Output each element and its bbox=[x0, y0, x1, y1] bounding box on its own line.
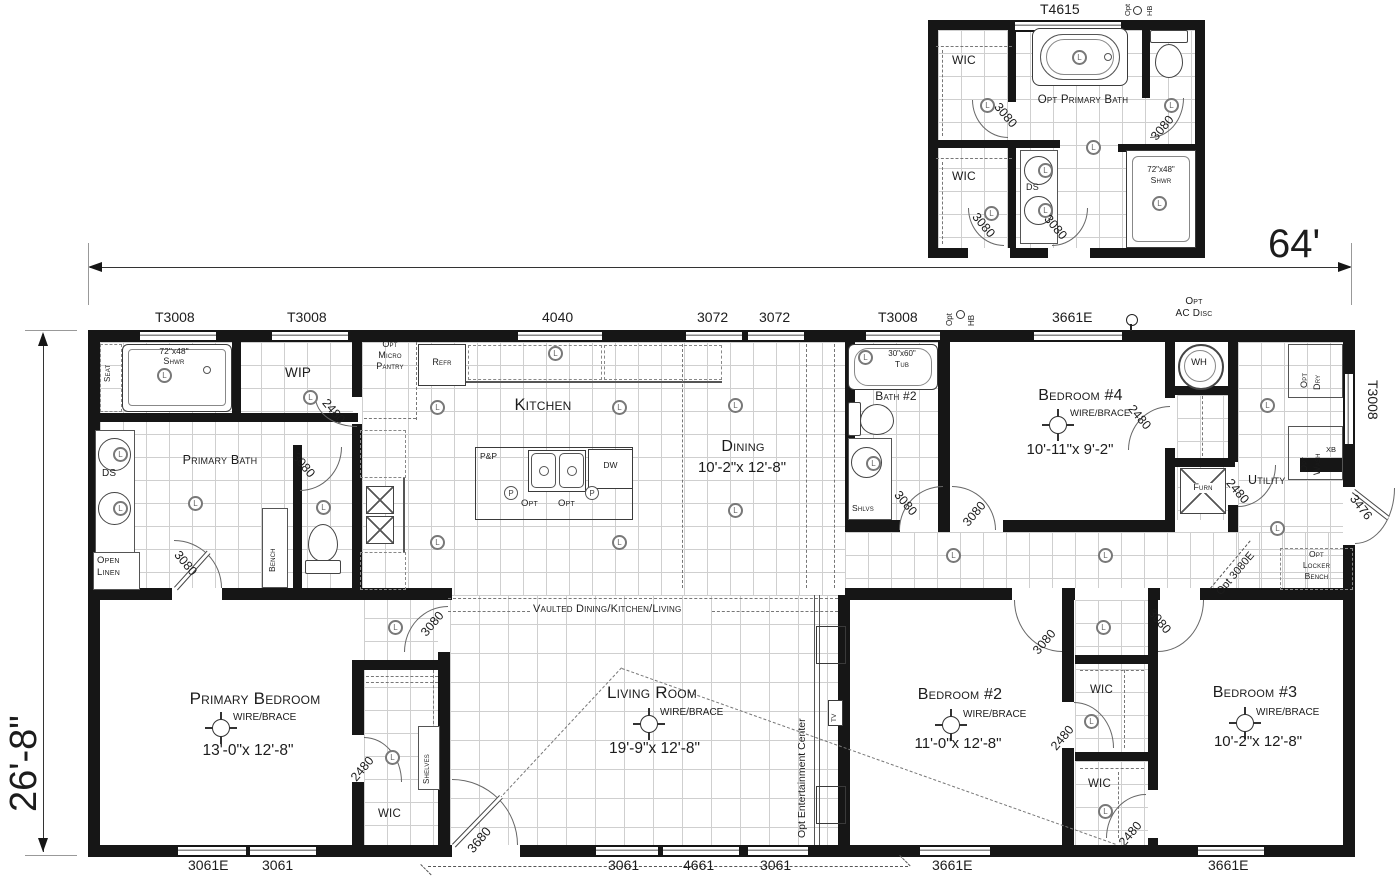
wall bbox=[1008, 140, 1060, 148]
closet-rod bbox=[1080, 670, 1144, 671]
wall bbox=[1195, 20, 1205, 258]
window bbox=[272, 330, 348, 342]
wic-label: WIC bbox=[378, 808, 401, 821]
wire-brace-label: WIRE/BRACE bbox=[660, 707, 723, 718]
arrow-left-icon bbox=[88, 262, 102, 272]
window-label: 4040 bbox=[542, 310, 573, 325]
wall bbox=[1008, 140, 1016, 248]
wall bbox=[1175, 458, 1235, 467]
bench-label: Bench bbox=[268, 548, 277, 572]
closet-rod bbox=[1080, 768, 1144, 769]
pots-pans-label: P&P bbox=[480, 452, 497, 461]
arrow-down-icon bbox=[38, 838, 48, 852]
dishwasher-label: DW bbox=[588, 461, 633, 470]
closet-rod bbox=[936, 158, 1012, 159]
wall bbox=[928, 20, 938, 258]
ceiling-light-icon: L bbox=[1164, 98, 1179, 113]
ceiling-light-icon: L bbox=[157, 368, 172, 383]
window-label: 3061 bbox=[608, 858, 639, 873]
room-label: Kitchen bbox=[498, 396, 588, 414]
ceiling-light-icon: L bbox=[1084, 714, 1099, 729]
window-label: 3661E bbox=[932, 858, 972, 873]
ceiling-light-icon: L bbox=[728, 398, 743, 413]
drain-icon bbox=[539, 466, 549, 476]
window-label: T3008 bbox=[287, 310, 327, 325]
window bbox=[866, 330, 940, 342]
wall bbox=[358, 660, 446, 670]
cabinet-outline bbox=[604, 345, 722, 380]
meter-icon bbox=[1130, 324, 1132, 331]
toilet-tank bbox=[305, 560, 341, 574]
closet-rod bbox=[366, 682, 438, 683]
ceiling-light-icon: L bbox=[1038, 163, 1053, 178]
drain-icon bbox=[567, 466, 577, 476]
opt-hb-label: Opt bbox=[1124, 4, 1132, 16]
opt-hb-label: Opt bbox=[946, 313, 955, 326]
vault-line bbox=[448, 611, 530, 612]
locker-bench-label: Opt bbox=[1280, 550, 1353, 559]
shower-size: 72"x48" bbox=[134, 347, 214, 356]
window bbox=[178, 845, 246, 857]
closet-rod bbox=[942, 50, 943, 136]
ceiling-light-icon: L bbox=[388, 620, 403, 635]
ceiling-fan-icon bbox=[636, 711, 662, 737]
window-label: 3061E bbox=[188, 858, 228, 873]
window bbox=[686, 330, 742, 342]
ceiling-light-icon: L bbox=[316, 500, 331, 515]
wall bbox=[1148, 838, 1158, 845]
window-label: T3008 bbox=[155, 310, 195, 325]
window-label: T3008 bbox=[1365, 380, 1380, 420]
counter-edge bbox=[466, 381, 722, 383]
meter-icon bbox=[1126, 314, 1138, 326]
entertainment-center-label: Opt Entertainment Center bbox=[797, 718, 809, 838]
wall bbox=[1062, 748, 1074, 845]
ceiling-light-icon: L bbox=[946, 548, 961, 563]
counter-outline bbox=[360, 430, 406, 478]
counter-outline bbox=[360, 552, 406, 590]
wall bbox=[352, 782, 364, 845]
linen-label: Open bbox=[97, 556, 120, 566]
dimension-line-width bbox=[90, 267, 1350, 268]
wall bbox=[1228, 342, 1238, 462]
washer-label: Opt bbox=[1300, 457, 1310, 472]
xb-label: XB bbox=[1326, 446, 1336, 454]
opt-pendant-label: Opt bbox=[558, 499, 575, 509]
wic-label: WIC bbox=[952, 170, 976, 183]
ceiling-light-icon: L bbox=[1152, 196, 1167, 211]
double-sink-label: DS bbox=[1026, 183, 1039, 193]
closet-rod bbox=[942, 162, 943, 244]
room-label: Living Room bbox=[582, 684, 722, 703]
ceiling-fan-icon bbox=[1045, 412, 1071, 438]
dimension-tick bbox=[88, 243, 89, 305]
window-label: 3661E bbox=[1208, 858, 1248, 873]
ceiling-light-icon: L bbox=[1260, 398, 1275, 413]
wall bbox=[1075, 752, 1148, 761]
wall bbox=[1008, 30, 1016, 102]
wall bbox=[1062, 588, 1075, 600]
wire-brace-label: WIRE/BRACE bbox=[963, 709, 1026, 720]
counter-edge bbox=[403, 478, 405, 552]
ceiling-light-icon: L bbox=[1098, 804, 1113, 819]
dryer-label: Dry bbox=[1313, 375, 1323, 390]
width-dimension: 64' bbox=[1268, 222, 1320, 266]
wall bbox=[1165, 342, 1175, 398]
wall bbox=[1148, 588, 1160, 600]
room-size: 11'-0"x 12'-8" bbox=[888, 736, 1028, 753]
hose-bib-icon bbox=[1133, 6, 1142, 15]
shelves-label: Shelves bbox=[423, 754, 432, 784]
pendant-light-icon: P bbox=[504, 486, 518, 500]
shower-size: 72"x48" bbox=[1133, 166, 1189, 175]
room-label: Bedroom #4 bbox=[998, 387, 1163, 405]
window bbox=[518, 330, 602, 342]
dimension-tick bbox=[1351, 243, 1352, 305]
closet-rod bbox=[1124, 670, 1125, 748]
ceiling-light-icon: L bbox=[1098, 548, 1113, 563]
window bbox=[1034, 330, 1122, 342]
ceiling-light-icon: L bbox=[303, 390, 318, 405]
tub-size: 30"x60" bbox=[872, 350, 932, 359]
toilet-tank bbox=[1150, 30, 1188, 43]
window bbox=[250, 845, 316, 857]
entertainment-shelf bbox=[816, 626, 846, 664]
room-label: Utility bbox=[1248, 474, 1285, 488]
arrow-right-icon bbox=[1338, 262, 1352, 272]
toilet-bowl bbox=[860, 404, 894, 435]
window bbox=[748, 845, 808, 857]
wall bbox=[928, 140, 1016, 148]
room-label: Bath #2 bbox=[856, 390, 936, 403]
door-opening bbox=[1048, 248, 1090, 258]
ceiling-break-line bbox=[834, 344, 835, 588]
ceiling-light-icon: L bbox=[113, 447, 128, 462]
toilet-bowl bbox=[308, 524, 338, 562]
wall bbox=[88, 413, 240, 422]
double-sink-label: DS bbox=[102, 468, 116, 479]
hose-bib-icon bbox=[956, 310, 965, 319]
wic-label: WIC bbox=[1090, 684, 1113, 697]
room-label: Primary Bedroom bbox=[135, 690, 375, 709]
toilet-bowl bbox=[1155, 44, 1183, 78]
refrigerator-label: Refr bbox=[418, 358, 466, 368]
window-label: 3661E bbox=[1052, 310, 1092, 325]
pantry-label: Micro bbox=[366, 351, 414, 361]
ceiling-light-icon: L bbox=[188, 496, 203, 511]
linen-label: Linen bbox=[97, 568, 120, 578]
washer-label: Wash bbox=[1313, 453, 1323, 475]
ceiling-light-icon: L bbox=[430, 535, 445, 550]
tv-label: TV bbox=[831, 714, 838, 722]
wall bbox=[232, 342, 241, 422]
wic-label: WIC bbox=[952, 54, 976, 67]
porch-outline bbox=[428, 866, 908, 867]
window-label: T3008 bbox=[878, 310, 918, 325]
cabinet-outline bbox=[416, 342, 417, 420]
ac-disconnect-label: Opt bbox=[1162, 296, 1226, 307]
wall bbox=[1228, 505, 1238, 532]
wall bbox=[352, 342, 362, 397]
wall bbox=[222, 588, 452, 600]
arrow-up-icon bbox=[38, 332, 48, 346]
ceiling-light-icon: L bbox=[430, 400, 445, 415]
furnace-label: Furn bbox=[1182, 483, 1224, 493]
room-label: Bedroom #2 bbox=[886, 686, 1034, 704]
wire-brace-label: WIRE/BRACE bbox=[1070, 409, 1130, 419]
range-burner bbox=[366, 516, 394, 544]
window bbox=[140, 330, 216, 342]
pantry-label: Pantry bbox=[366, 362, 414, 372]
tub-label: Tub bbox=[872, 360, 932, 369]
ceiling-light-icon: L bbox=[612, 535, 627, 550]
opt-hb-label: HB bbox=[968, 315, 977, 326]
ceiling-light-icon: L bbox=[1086, 140, 1101, 155]
cabinet-outline bbox=[364, 418, 416, 419]
wall bbox=[845, 588, 1012, 600]
window bbox=[596, 845, 658, 857]
shower-label: Shwr bbox=[134, 357, 214, 367]
ceiling-light-icon: L bbox=[1270, 521, 1285, 536]
window bbox=[748, 330, 804, 342]
closet-rod bbox=[1202, 396, 1203, 456]
door-opening bbox=[968, 248, 1010, 258]
shelves-label: Shlvs bbox=[852, 504, 874, 513]
seat-label: Seat bbox=[104, 365, 113, 382]
entertainment-shelf bbox=[816, 786, 846, 824]
water-heater-label: WH bbox=[1178, 358, 1220, 368]
window bbox=[1198, 845, 1264, 857]
room-label: Primary Bath bbox=[150, 454, 290, 468]
closet-rod bbox=[366, 676, 438, 677]
faucet-icon bbox=[1104, 53, 1112, 61]
ceiling-light-icon: L bbox=[113, 501, 128, 516]
pendant-light-icon: P bbox=[585, 486, 599, 500]
ceiling-light-icon: L bbox=[385, 750, 400, 765]
ceiling-light-icon: L bbox=[548, 346, 563, 361]
ceiling-light-icon: L bbox=[858, 350, 873, 365]
wall bbox=[845, 520, 900, 532]
dryer-label: Opt bbox=[1300, 373, 1310, 388]
room-label: Bedroom #3 bbox=[1180, 684, 1330, 702]
window bbox=[663, 845, 739, 857]
wall bbox=[1165, 448, 1175, 532]
window bbox=[1343, 374, 1355, 444]
locker-bench-label: Locker bbox=[1280, 561, 1353, 570]
room-size: 19'-9"x 12'-8" bbox=[592, 740, 717, 757]
window-label: 3061 bbox=[262, 858, 293, 873]
window-label: 4661 bbox=[683, 858, 714, 873]
shower-label: Shwr bbox=[1133, 176, 1189, 185]
opt-pendant-label: Opt bbox=[521, 499, 538, 509]
depth-dimension: 26'-8" bbox=[4, 715, 46, 812]
wire-brace-label: WIRE/BRACE bbox=[1256, 707, 1319, 718]
dimension-tick bbox=[25, 330, 77, 331]
door-opening bbox=[452, 845, 520, 857]
faucet-icon bbox=[203, 366, 211, 374]
ceiling-light-icon: L bbox=[728, 503, 743, 518]
pantry-label: Opt bbox=[366, 340, 414, 350]
ceiling-fan-icon bbox=[208, 715, 234, 741]
wire-brace-label: WIRE/BRACE bbox=[233, 712, 296, 723]
closet-rod bbox=[936, 46, 1012, 47]
cabinet-outline bbox=[468, 345, 602, 380]
room-label: WIP bbox=[285, 366, 311, 381]
ceiling-light-icon: L bbox=[1072, 50, 1087, 65]
locker-bench-label: Bench bbox=[1280, 572, 1353, 581]
room-size: 13'-0"x 12'-8" bbox=[158, 742, 338, 759]
wall bbox=[1142, 30, 1150, 98]
opt-hb-label: HB bbox=[1146, 6, 1154, 16]
inset-title: Opt Primary Bath bbox=[1018, 94, 1148, 107]
vault-line bbox=[448, 598, 838, 599]
room-size: 10'-11"x 9'-2" bbox=[995, 442, 1145, 459]
wall bbox=[1062, 600, 1074, 702]
ceiling-light-icon: L bbox=[1096, 620, 1111, 635]
floor-plan: 64' 26'-8" T4615 Opt HB WIC WIC Opt Prim… bbox=[0, 0, 1400, 877]
room-size: 10'-2"x 12'-8" bbox=[1188, 734, 1328, 751]
vaulted-ceiling-label: Vaulted Dining/Kitchen/Living bbox=[533, 603, 681, 615]
wic-label: WIC bbox=[1088, 778, 1111, 791]
range-burner bbox=[366, 486, 394, 514]
window-label: 3061 bbox=[760, 858, 791, 873]
window-label: T4615 bbox=[1040, 2, 1080, 17]
wall bbox=[1003, 520, 1165, 532]
room-label: Dining bbox=[688, 438, 798, 456]
closet-rod bbox=[433, 670, 434, 724]
room-size: 10'-2"x 12'-8" bbox=[672, 460, 812, 477]
wall bbox=[1075, 655, 1148, 664]
dimension-tick bbox=[25, 855, 77, 856]
ac-disconnect-label: AC Disc bbox=[1162, 308, 1226, 319]
window-label: 3072 bbox=[697, 310, 728, 325]
ceiling-light-icon: L bbox=[866, 456, 881, 471]
window-label: 3072 bbox=[759, 310, 790, 325]
window bbox=[920, 845, 990, 857]
ceiling-light-icon: L bbox=[612, 400, 627, 415]
